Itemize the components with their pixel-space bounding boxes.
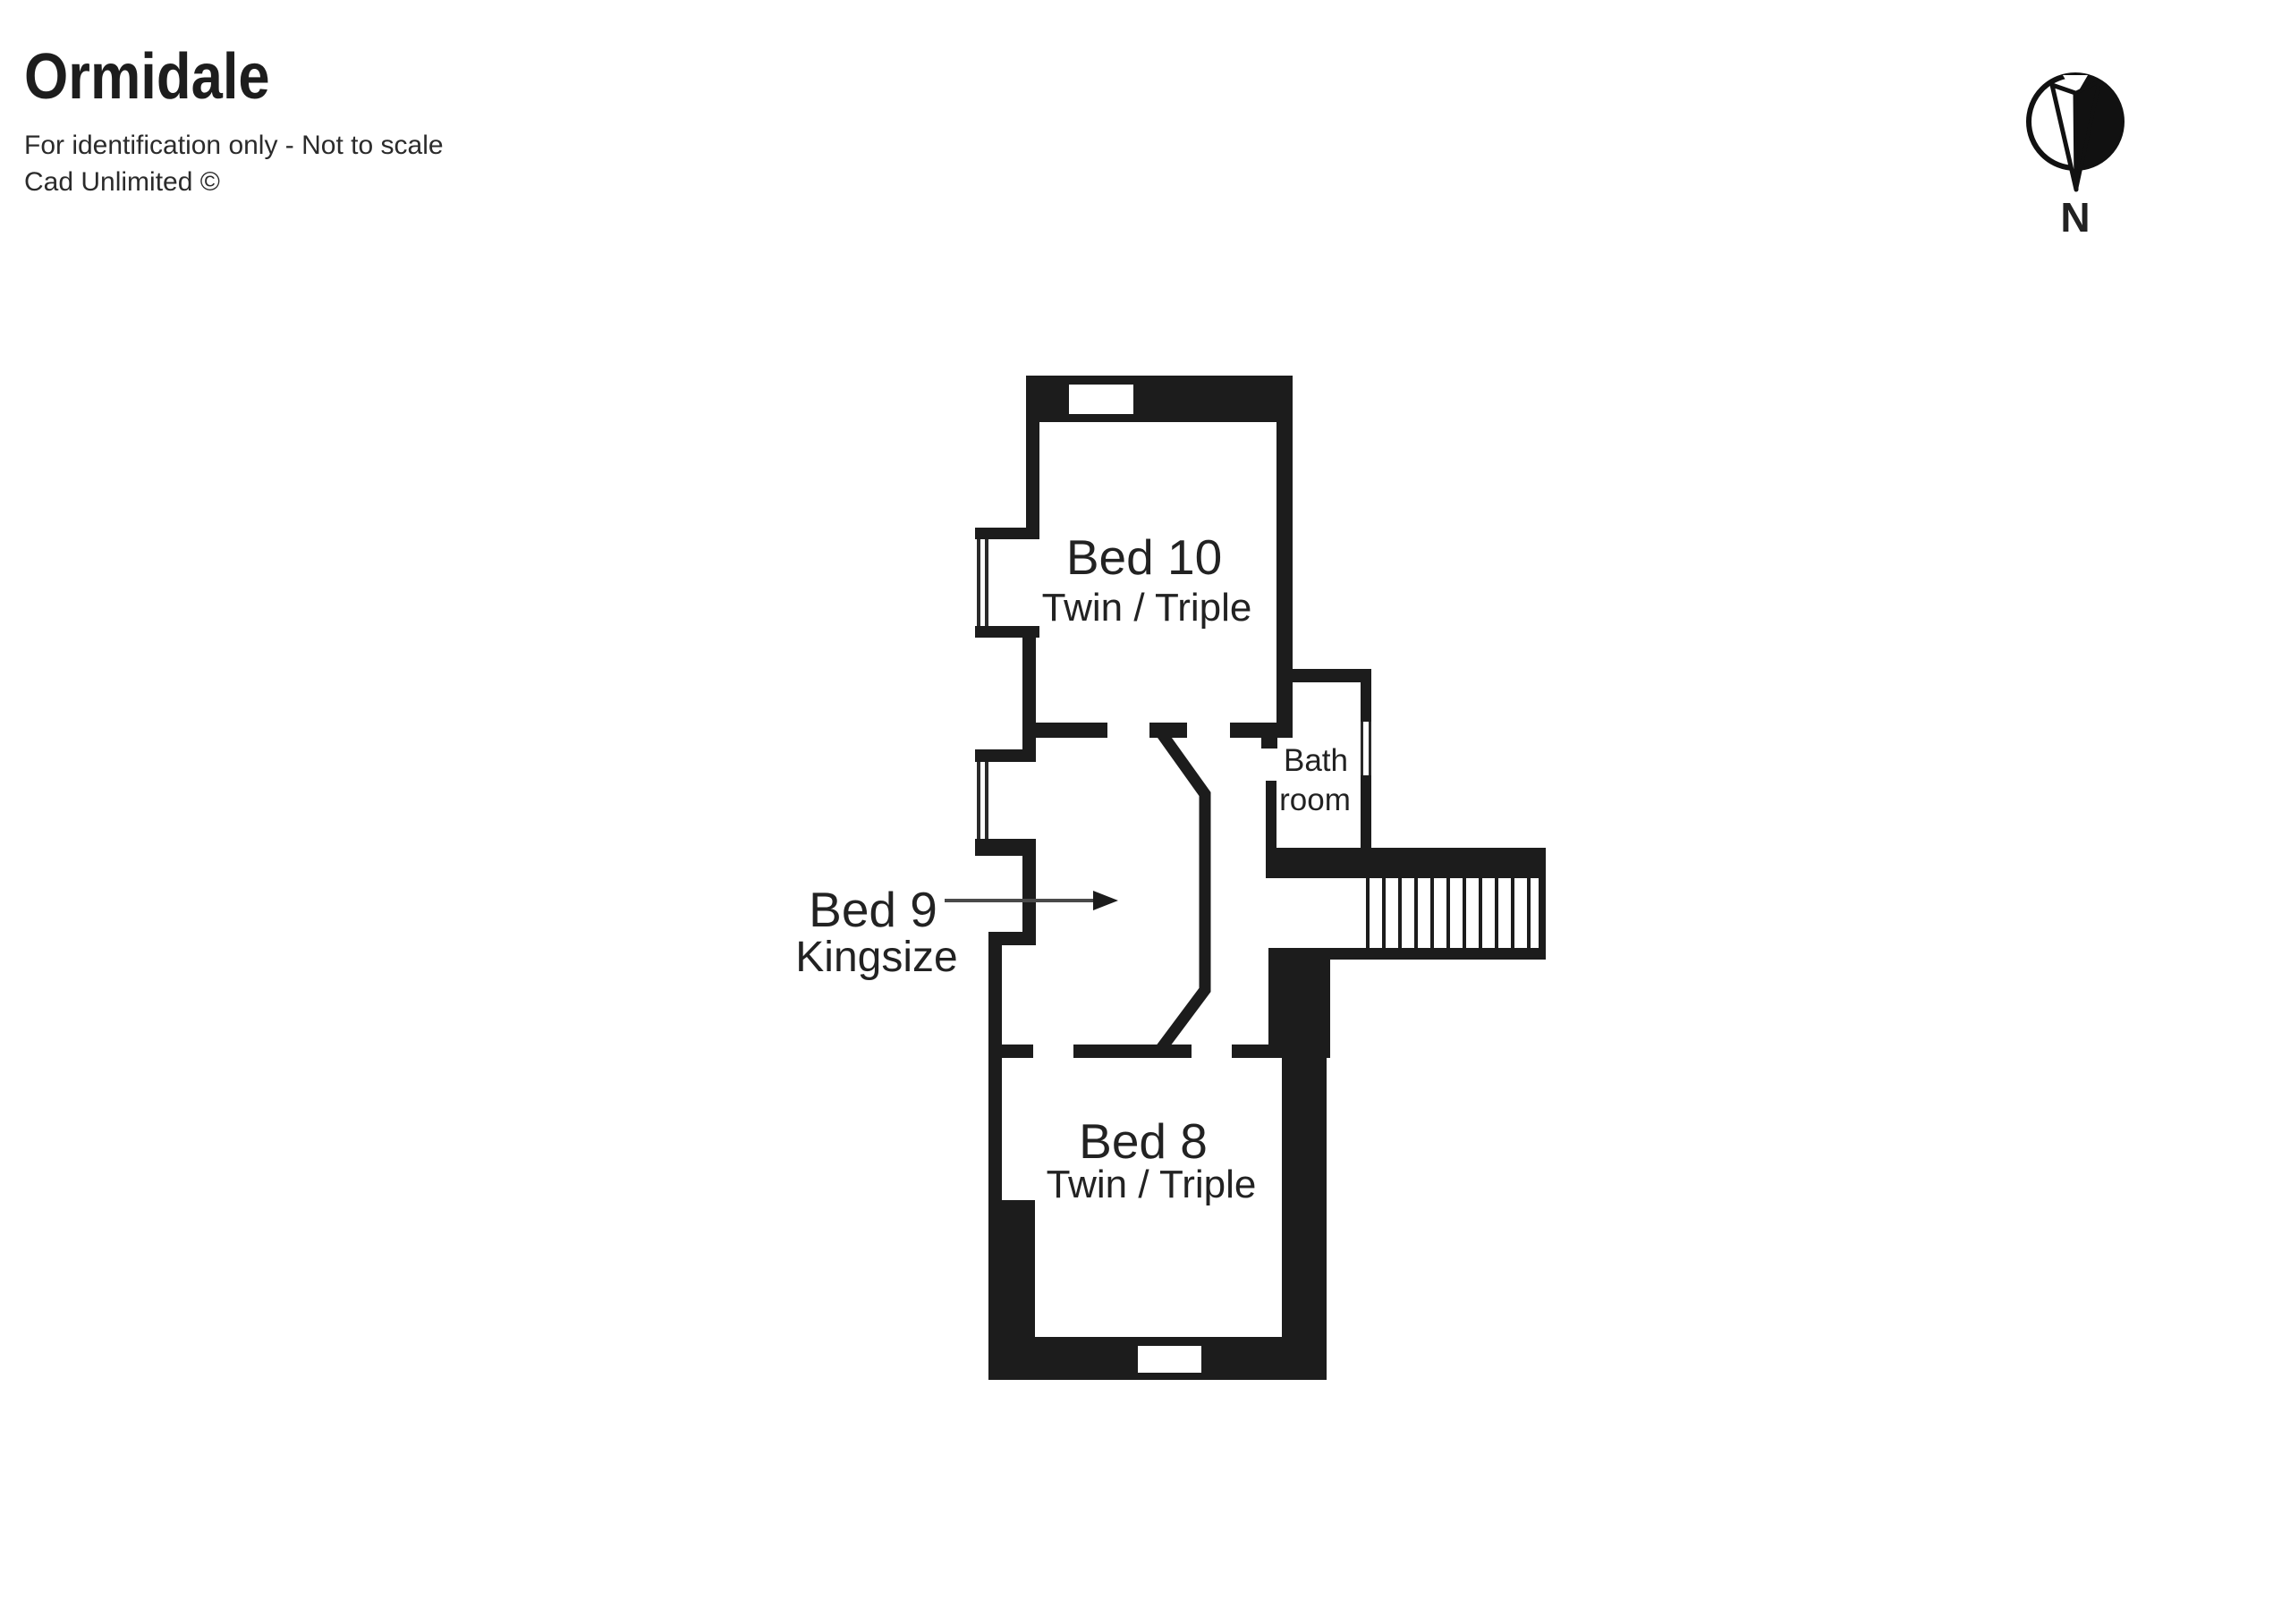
stairs-top-wall — [1266, 848, 1546, 878]
bed10-left-wall-upper — [1026, 422, 1039, 528]
stairs-bottom-wall — [1330, 948, 1546, 960]
stairs-end-cap — [1539, 878, 1546, 948]
page-title: Ormidale — [24, 45, 270, 109]
bathroom-top-wall — [1288, 669, 1371, 682]
bed10-window-bay-top-step — [975, 528, 1039, 539]
bed10-bed9-divider-left — [1022, 723, 1107, 738]
bed9-bed8-divider-right — [1232, 1045, 1273, 1058]
bathroom-left-wall — [1266, 781, 1276, 850]
bed9-window-bay-bottom-step — [975, 839, 1036, 856]
north-label: N — [2060, 197, 2090, 238]
bed9-left-wall-lower — [988, 945, 1002, 1045]
bed8-type-label: Twin / Triple — [1047, 1165, 1257, 1205]
bed9-hallway-partition-wall — [1160, 732, 1205, 1050]
bed9-left-wall-middle — [1022, 856, 1036, 932]
bed8-left-wall-step — [988, 1200, 1035, 1214]
bed10-right-wall — [1276, 376, 1293, 738]
bed9-left-window — [977, 762, 988, 839]
plan-overlay — [0, 0, 2290, 1624]
bed9-type-label: Kingsize — [795, 936, 957, 979]
bathroom-door-jamb — [1261, 738, 1277, 749]
bed8-left-wall-thick — [988, 1214, 1035, 1337]
page-credit: Cad Unlimited © — [24, 169, 220, 196]
bed10-label: Bed 10 — [1066, 533, 1222, 582]
floor-plan-page: Ormidale For identification only - Not t… — [0, 0, 2290, 1624]
bed10-bed9-divider-right — [1230, 723, 1291, 738]
bed10-bed9-divider-middle — [1149, 723, 1187, 738]
bathroom-label-line1: Bath — [1284, 745, 1348, 776]
bed10-left-wall-lower — [1022, 638, 1036, 723]
bed9-bed8-divider-middle — [1073, 1045, 1192, 1058]
bed8-right-wall — [1282, 1058, 1327, 1337]
bed8-bottom-window — [1138, 1346, 1201, 1373]
bed9-left-wall-jog — [988, 932, 1036, 945]
stairs-treads — [1366, 878, 1546, 948]
bed10-left-window — [977, 539, 988, 626]
bed9-label: Bed 9 — [809, 885, 937, 935]
page-subtitle: For identification only - Not to scale — [24, 132, 444, 159]
bed9-left-wall-top — [1022, 738, 1036, 749]
stairwell-corner-block — [1268, 948, 1330, 1058]
bed9-window-bay-top-step — [975, 749, 1036, 762]
bed10-top-wall — [1026, 376, 1291, 422]
bed10-type-label: Twin / Triple — [1042, 588, 1252, 628]
bathroom-window — [1361, 722, 1371, 775]
bed9-bed8-divider-left — [988, 1045, 1033, 1058]
bathroom-label-line2: room — [1279, 784, 1351, 816]
bed8-label: Bed 8 — [1079, 1117, 1208, 1166]
bathroom-right-wall-lower — [1361, 775, 1371, 850]
bed10-window-bay-bottom-step — [975, 626, 1039, 638]
bed8-left-wall-upper — [988, 1058, 1002, 1200]
bed10-top-window — [1069, 385, 1133, 414]
north-compass-icon — [2029, 75, 2122, 190]
bathroom-right-wall-upper — [1361, 682, 1371, 722]
